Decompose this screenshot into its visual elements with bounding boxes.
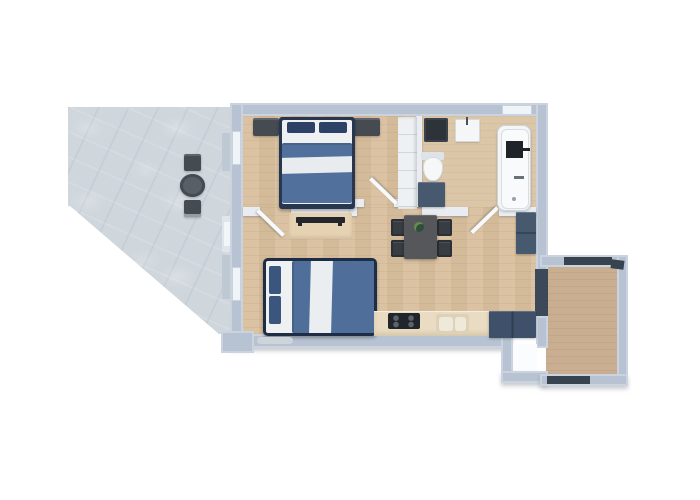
wardrobe: [398, 117, 417, 209]
table-plant: [414, 222, 424, 232]
balcony-railing-bottom: [547, 376, 590, 384]
terrace-floor: [68, 107, 232, 334]
bed-2-pillow-bottom: [269, 296, 281, 324]
bathtub: [497, 125, 531, 211]
tv-foot-right: [338, 222, 342, 226]
bed-1-pillow-left: [287, 122, 315, 133]
nightstand-right: [354, 118, 380, 136]
bed-1-white-band: [282, 156, 352, 174]
bathtub-drain: [512, 197, 516, 201]
balcony-wall-right: [617, 255, 628, 386]
side-cabinet-right: [516, 212, 536, 254]
window-left-top: [232, 131, 241, 165]
bed-2: [263, 258, 377, 336]
nightstand-left: [253, 118, 279, 136]
bathroom-sink-faucet: [466, 117, 468, 125]
dining-chair-bottom-right: [437, 240, 452, 257]
wall-right: [536, 103, 548, 271]
doormat: [257, 337, 293, 344]
bed-1-pillow-right: [319, 122, 347, 133]
balcony-floor: [546, 265, 617, 375]
floor-plan-canvas: [0, 0, 700, 500]
bed-2-pillow-top: [269, 266, 281, 294]
dining-chair-top-right: [437, 219, 452, 236]
terrace-table: [180, 174, 205, 197]
bathtub-handle: [514, 176, 524, 179]
tv-foot-left: [298, 222, 302, 226]
bed-1: [279, 117, 355, 209]
kitchen-sink-basin-left: [439, 317, 453, 331]
wall-right-lower: [536, 316, 548, 348]
balcony-railing-corner: [611, 259, 625, 270]
terrace-chair-bottom: [184, 200, 201, 217]
toilet-bowl: [423, 157, 443, 181]
bed-2-white-stripe: [309, 261, 333, 333]
washing-machine: [424, 118, 448, 142]
cooktop: [388, 313, 420, 329]
window-bathroom-top: [502, 105, 532, 115]
balcony-railing-top: [564, 257, 612, 265]
wall-corner-block: [221, 331, 254, 353]
bathtub-faucet: [506, 141, 523, 158]
terrace-chair-top: [184, 154, 201, 171]
window-left-bottom: [232, 267, 241, 301]
entry-door-recess: [513, 344, 537, 372]
balcony-door: [535, 269, 548, 318]
kitchen-sink: [436, 314, 469, 334]
bed-2-duvet: [292, 261, 374, 333]
bathroom-vanity: [418, 182, 445, 207]
kitchen-sink-basin-right: [455, 317, 466, 331]
wall-top: [230, 103, 548, 116]
kitchen-cabinet-dark: [489, 311, 536, 338]
bathtub-spout: [523, 148, 530, 151]
